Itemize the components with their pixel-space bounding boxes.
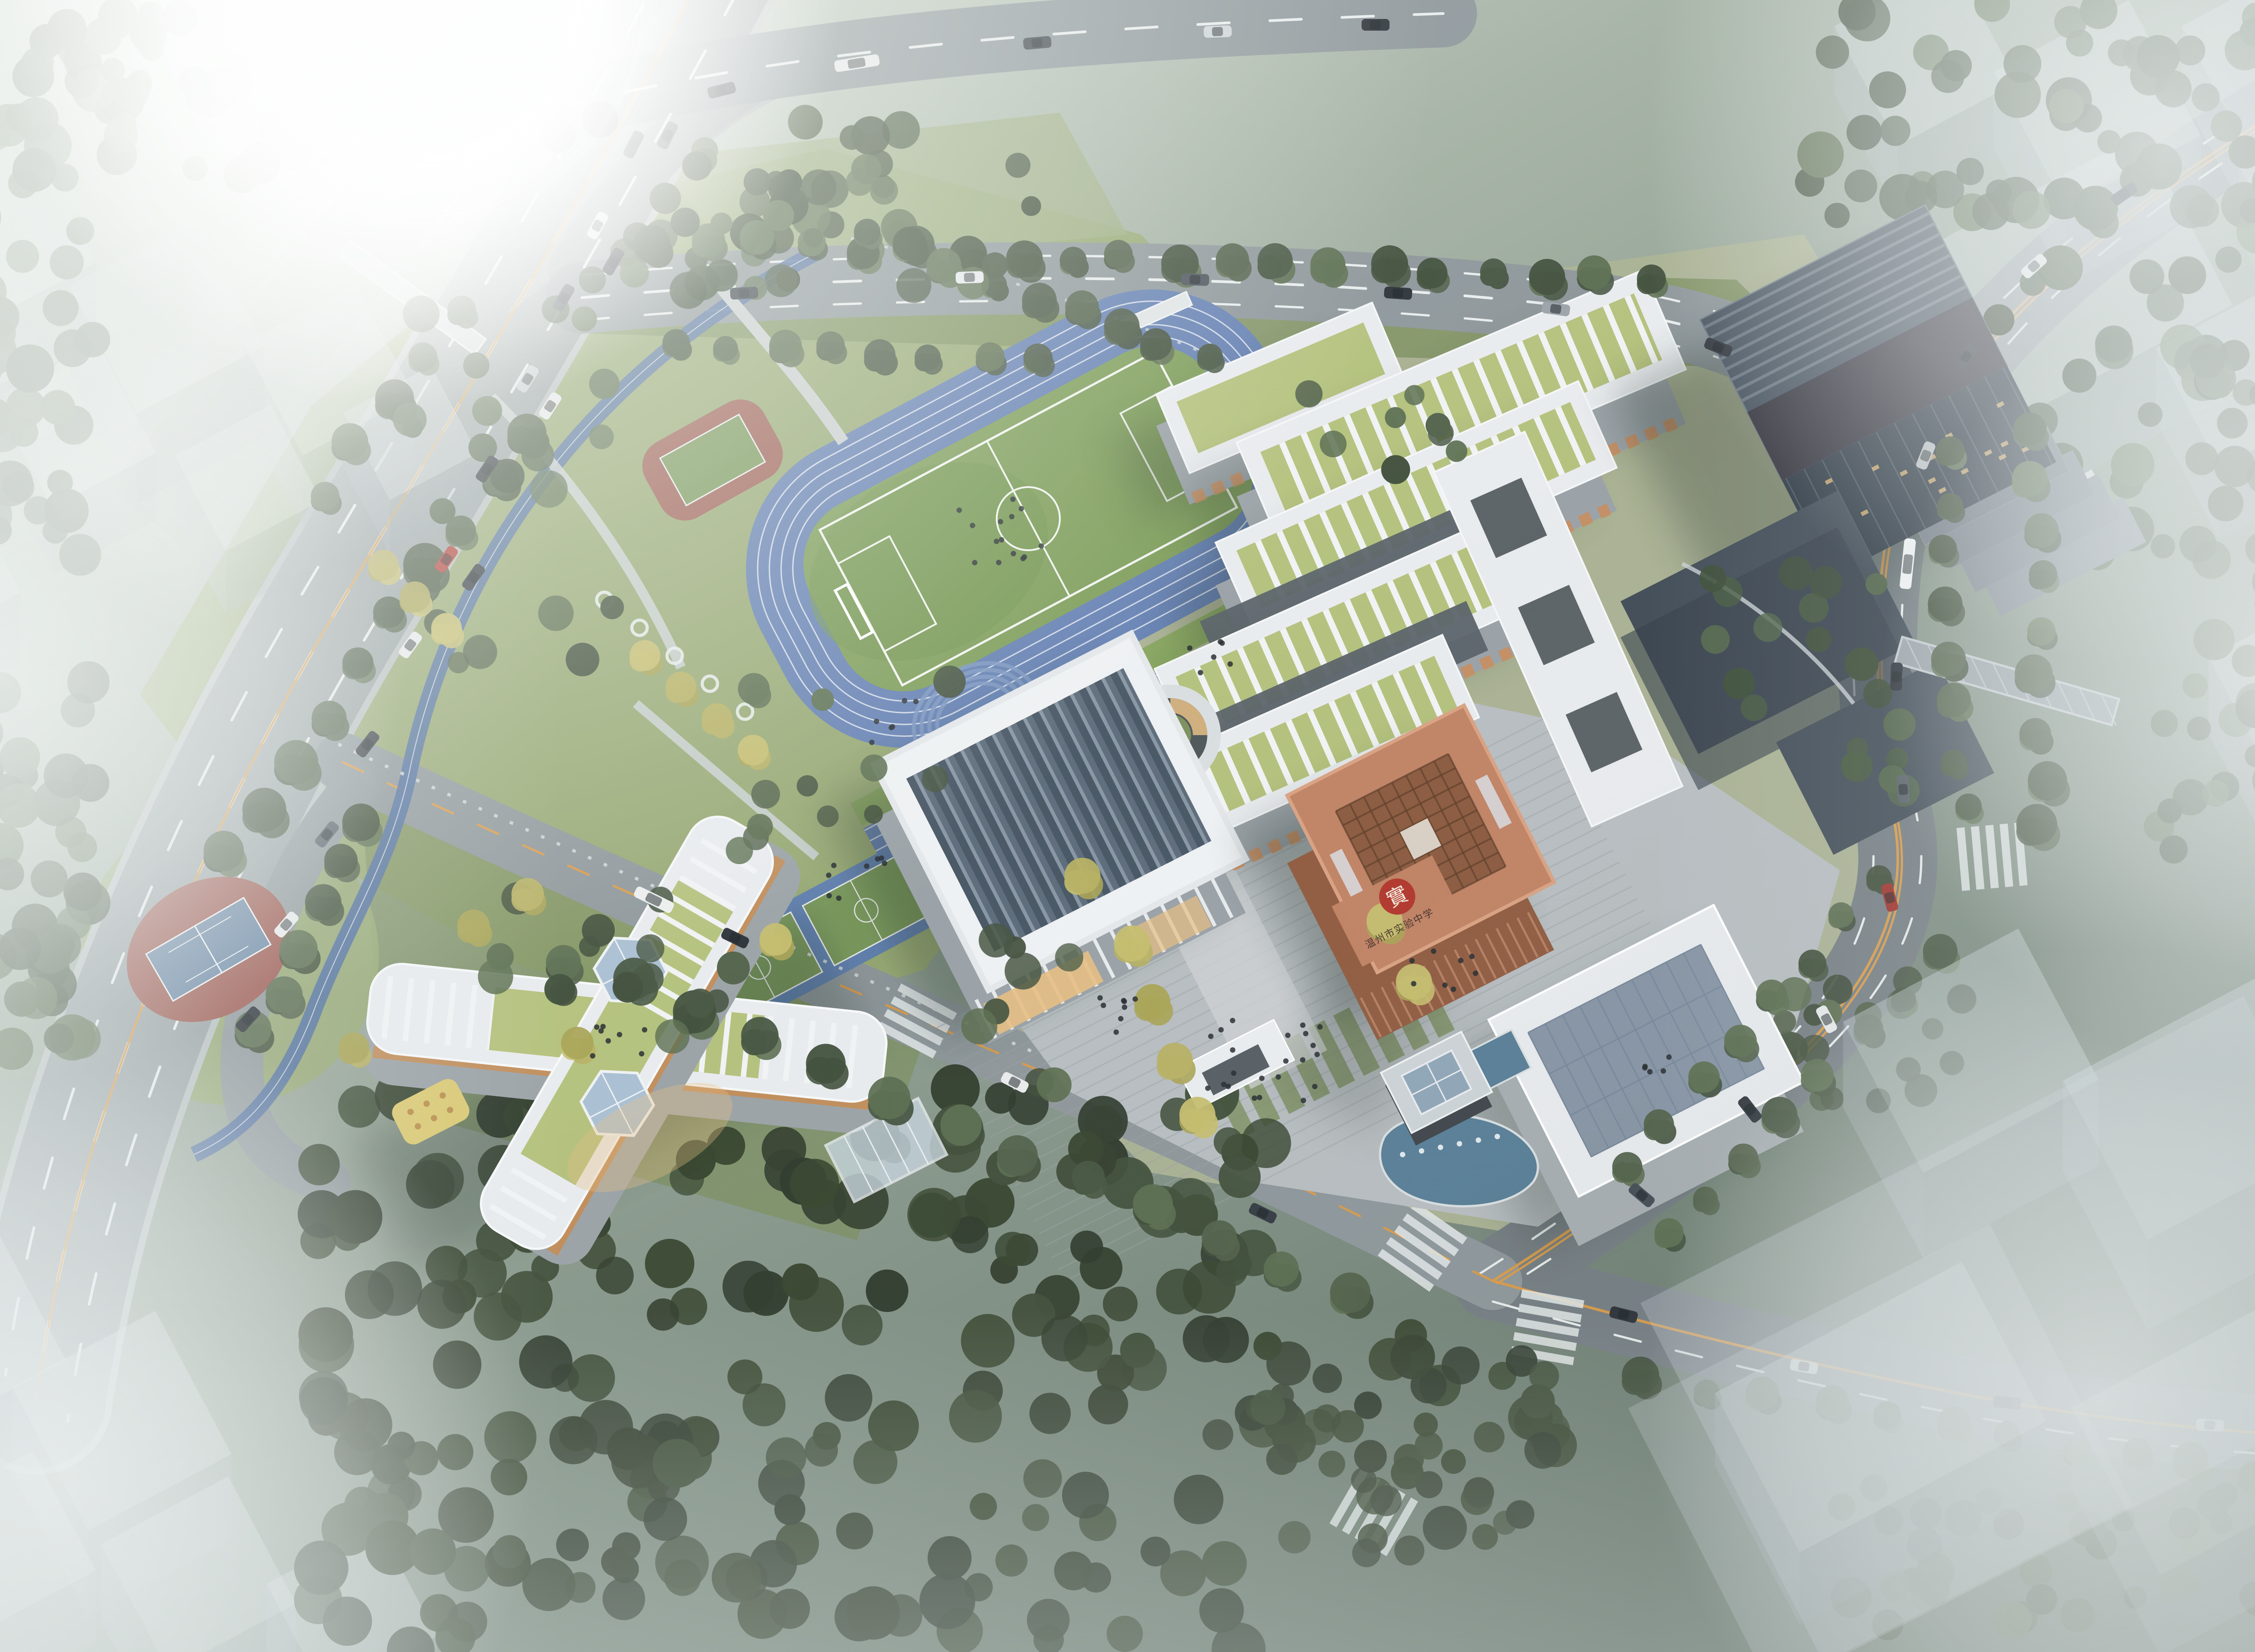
atmosphere-veil bbox=[0, 0, 2255, 1652]
aerial-rendering-canvas: 實 温州市实验中学 bbox=[0, 0, 2255, 1652]
